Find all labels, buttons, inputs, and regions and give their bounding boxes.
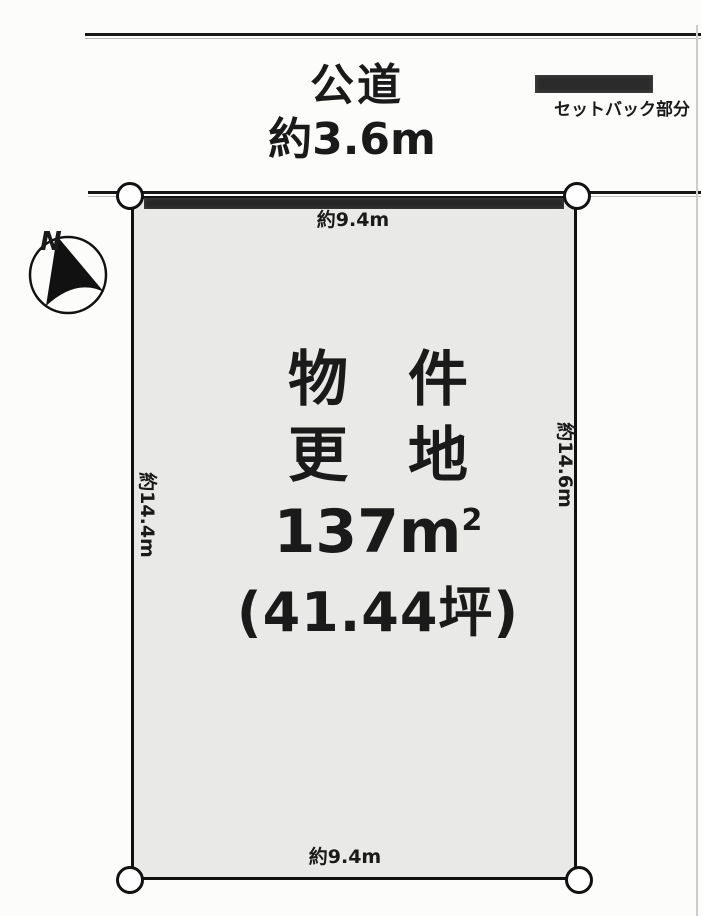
road-width-label: 約3.6m (222, 118, 482, 162)
land-area-sqm-exponent: 2 (461, 503, 482, 538)
land-area-sqm-label: 137m2 (155, 502, 601, 562)
north-compass-icon: N (20, 212, 116, 320)
land-area-sqm-value: 137m (274, 497, 462, 567)
dimension-top: 約9.4m (273, 210, 433, 231)
land-condition-label: 更 地 (155, 426, 601, 486)
road-name-label: 公道 (237, 64, 477, 108)
land-area-tsubo-label: (41.44坪) (155, 586, 601, 640)
land-plot-diagram: 公道 約3.6m セットバック部分 N 約9.4m 約14.4m 約14.6m … (0, 0, 701, 916)
setback-strip (144, 198, 564, 209)
compass-north-label: N (40, 227, 62, 257)
corner-marker-bottom-left (116, 866, 144, 894)
setback-legend-swatch (535, 75, 653, 93)
dimension-left: 約14.4m (135, 460, 157, 570)
corner-marker-top-left (116, 182, 144, 210)
setback-legend-label: セットバック部分 (542, 101, 701, 120)
scan-edge-artifact (696, 25, 698, 916)
corner-marker-top-right (563, 182, 591, 210)
dimension-bottom: 約9.4m (265, 847, 425, 868)
corner-marker-bottom-right (565, 866, 593, 894)
road-lower-edge-line (88, 191, 701, 194)
road-upper-edge-line (85, 33, 701, 36)
property-type-label: 物 件 (155, 350, 601, 410)
road-upper-edge-shadow (85, 38, 701, 39)
